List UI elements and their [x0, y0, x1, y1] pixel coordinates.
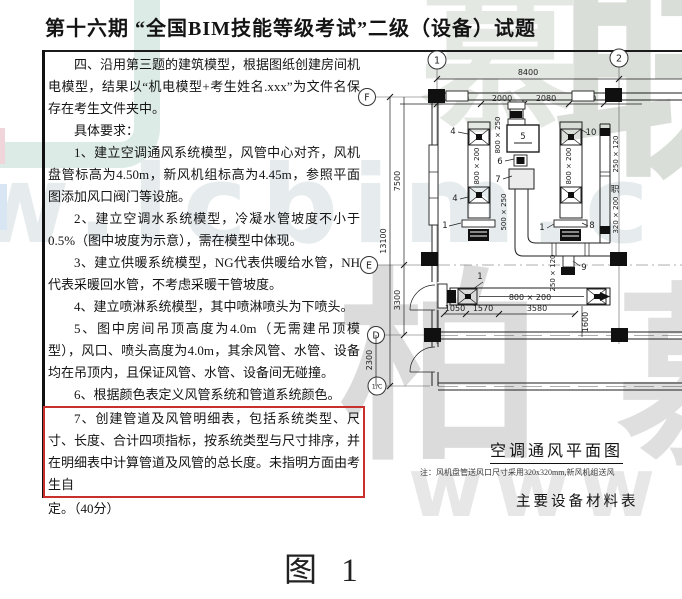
- room-label: 职: [611, 185, 620, 195]
- page-title: 第十六期 “全国BIM技能等级考试”二级（设备）试题: [45, 12, 536, 41]
- dim-1050: 1050: [445, 304, 465, 313]
- bottom-duct-run: 800 × 200 1: [438, 272, 610, 308]
- duct-size-250x120: 250 × 120: [612, 135, 620, 172]
- fan-coil-tag-1: 1: [477, 272, 482, 282]
- paragraph-item-4: 4、建立喷淋系统模型，其中喷淋喷头为下喷头。: [48, 296, 360, 318]
- fresh-air-unit: 800 × 250 5 6 7: [494, 100, 539, 189]
- right-riser-duct: 250 × 120 职 320 × 200 10: [582, 124, 620, 243]
- equipment-tag-6: 6: [497, 157, 502, 167]
- plan-note: 注：风机盘管送风口尺寸采用320x320mm,新风机组送风: [420, 467, 682, 478]
- fan-coil-tag-1: 1: [539, 223, 544, 233]
- paragraph-item-2: 2、建立空调水系统模型，冷凝水管坡度不小于0.5%（图中坡度为示意），需在模型中…: [48, 208, 360, 252]
- paragraph-item-5: 5、图中房间吊顶高度为4.0m（无需建吊顶模型），风口、喷头高度为4.0m，其余…: [48, 318, 360, 384]
- figure-caption: 图 1: [284, 543, 366, 591]
- equipment-tag-8: 8: [589, 221, 594, 231]
- dim-1570: 1570: [473, 304, 493, 313]
- fan-coil-tag-1: 1: [442, 221, 447, 231]
- watermark-edge-sliver: [0, 184, 7, 230]
- dim-13100: 13100: [379, 228, 388, 253]
- grid-bubble-F: F: [364, 93, 369, 104]
- paragraph-item-3: 3、建立供暖系统模型，NG代表供暖给水管，NH代表采暖回水管，不考虑采暖干管坡度…: [48, 252, 360, 296]
- plan-caption: 空调通风平面图: [490, 437, 623, 464]
- equipment-tag-7: 7: [495, 175, 500, 185]
- paragraph-item-1: 1、建立空调通风系统模型，风管中心对齐，风机盘管标高为4.50m，新风机组标高为…: [48, 142, 360, 208]
- duct-size-800x200: 800 × 200: [509, 293, 551, 302]
- dim-8400: 8400: [518, 68, 538, 77]
- question-text: 四、沿用第三题的建筑模型，根据图纸创建房间机电模型，结果以“机电模型+考生姓名.…: [48, 54, 360, 520]
- paragraph-item-6: 6、根据颜色表定义风管系统和管道系统颜色。: [48, 384, 360, 406]
- dim-7500: 7500: [393, 171, 402, 191]
- watermark-edge-sliver: [0, 128, 5, 164]
- grid-bubble-1: 1: [434, 56, 440, 67]
- paragraph-requirements-head: 具体要求：: [48, 120, 360, 142]
- floor-plan-svg: 1 2 F E D 1/C 8400 2040 2000 208: [342, 42, 682, 462]
- equipment-tag-10: 10: [586, 128, 597, 138]
- duct-size-320x200: 320 × 200: [612, 196, 620, 233]
- dim-2300: 2300: [365, 350, 374, 370]
- grid-bubble-E: E: [366, 261, 372, 272]
- paragraph-item-7-tail: 定。（40分）: [48, 498, 360, 520]
- equipment-tag-9: 9: [581, 263, 586, 273]
- duct-size-250x120: 250 × 120: [549, 254, 557, 291]
- left-dimensions: 13100 7500 3300 2300: [365, 94, 407, 389]
- duct-size-800x250: 800 × 250: [494, 116, 502, 153]
- duct-size-800x200: 800 × 200: [473, 147, 481, 184]
- materials-table-caption: 主要设备材料表: [516, 490, 639, 511]
- dim-3300: 3300: [393, 290, 402, 310]
- diffuser-tag-4: 4: [450, 127, 455, 137]
- duct-size-500x250: 500 × 250: [500, 193, 508, 230]
- grid-bubble-1C: 1/C: [372, 384, 383, 391]
- equipment-tag-5: 5: [520, 132, 525, 142]
- grid-bubble-2: 2: [616, 54, 622, 65]
- dim-3580: 3580: [527, 304, 547, 313]
- paragraph-intro: 四、沿用第三题的建筑模型，根据图纸创建房间机电模型，结果以“机电模型+考生姓名.…: [48, 54, 360, 120]
- highlight-box: 7、创建管道及风管明细表，包括系统类型、尺寸、长度、合计四项指标，按系统类型与尺…: [43, 406, 365, 498]
- supply-duct-elbow: 500 × 250 250 × 120 9: [500, 189, 610, 292]
- dim-1600-vertical: 1600: [581, 312, 590, 332]
- paragraph-item-7: 7、创建管道及风管明细表，包括系统类型、尺寸、长度、合计四项指标，按系统类型与尺…: [48, 408, 360, 496]
- left-duct-run: 800 × 200 4 4 1: [442, 122, 495, 241]
- dim-2080: 2080: [536, 94, 556, 103]
- right-duct-run: 800 × 200 1 8: [539, 122, 594, 241]
- duct-size-800x200: 800 × 200: [565, 147, 573, 184]
- scanned-exam-page: 联 慕 w.lcbim.c 柏 慕 www 第十六期 “全国BIM技能等级考试”…: [0, 0, 682, 599]
- diffuser-tag-4: 4: [452, 194, 457, 204]
